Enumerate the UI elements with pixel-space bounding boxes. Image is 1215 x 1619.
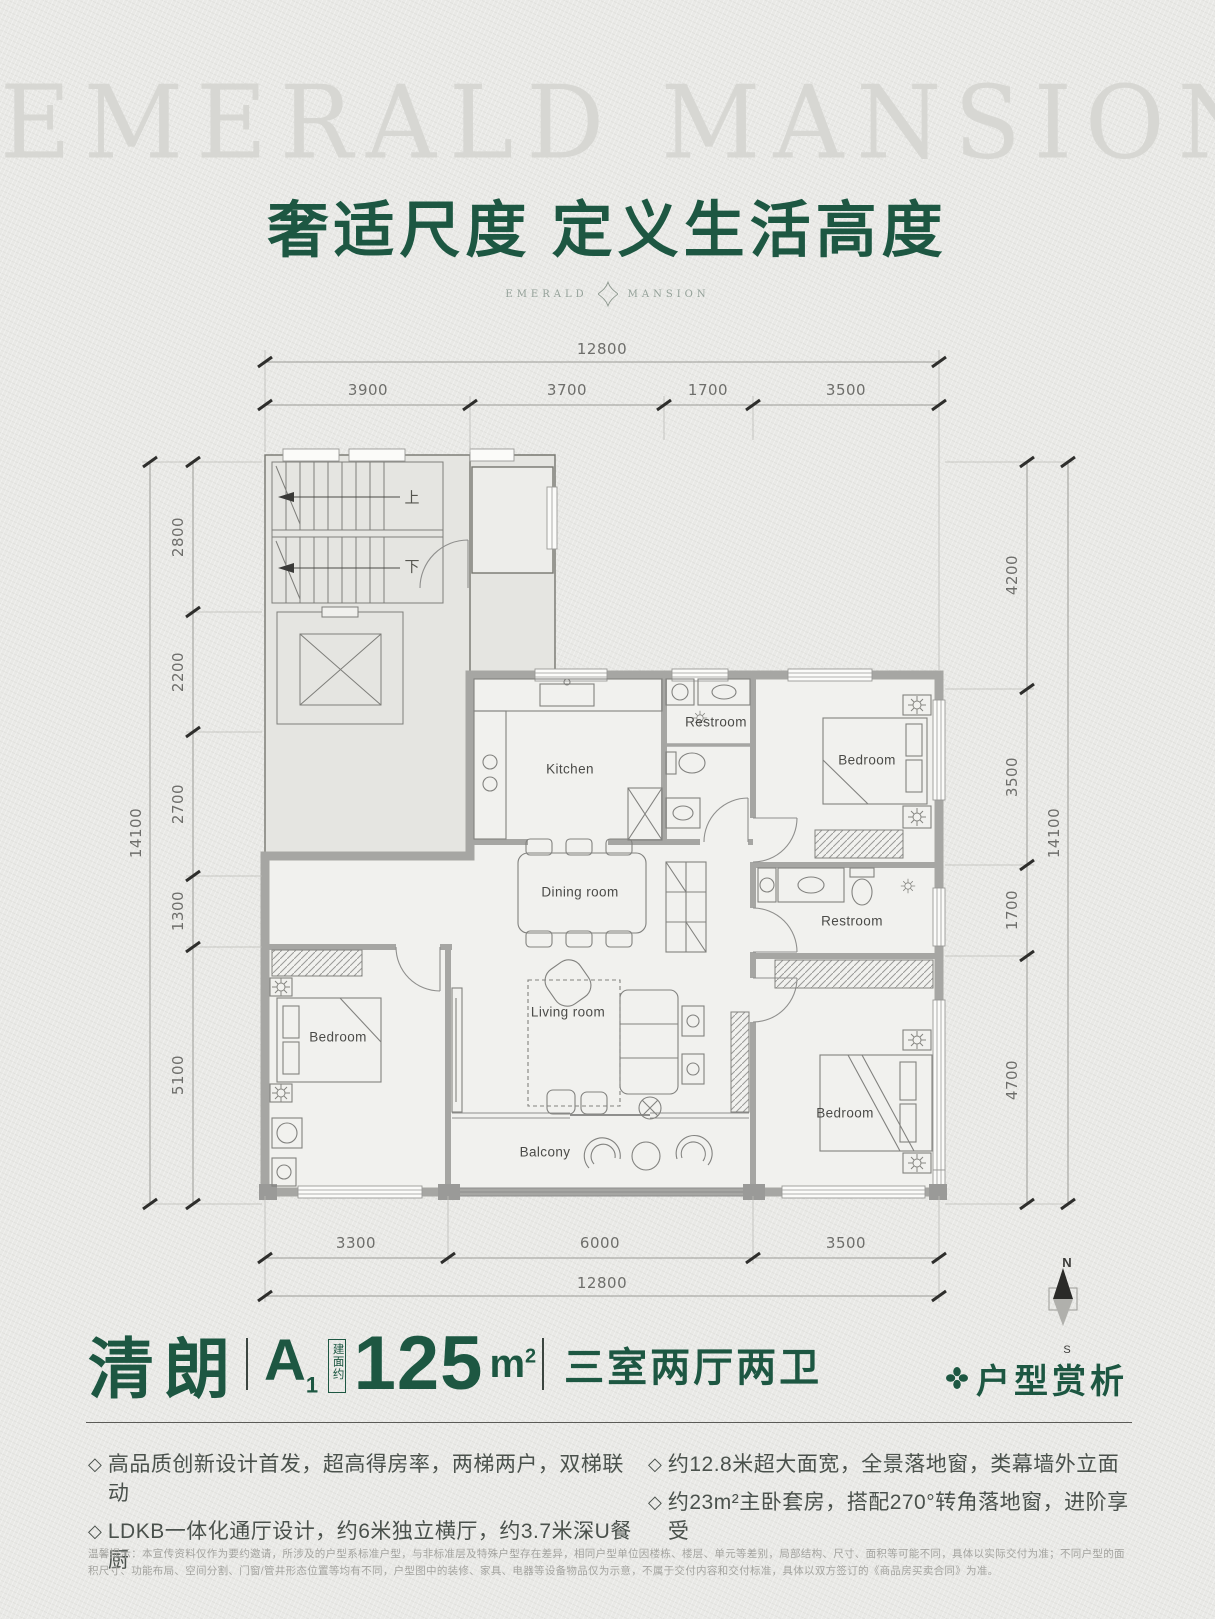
dim-right-seg-1: 4200 [1003,555,1021,595]
room-label-bedroom-top-right: Bedroom [838,753,896,768]
feature-item: ◇ 高品质创新设计首发，超高得房率，两梯两户，双梯联动 [88,1450,633,1508]
area-unit-letter: m [489,1342,525,1386]
dim-right-seg-2: 3500 [1003,757,1021,797]
dim-top-seg-2: 3700 [547,381,587,399]
feature-text: 高品质创新设计首发，超高得房率，两梯两户，双梯联动 [108,1450,633,1508]
room-label-bedroom-bottom-right: Bedroom [816,1106,874,1121]
diamond-bullet-icon: ◇ [88,1517,102,1546]
area-value: 125 [354,1326,484,1402]
room-label-living: Living room [531,1005,605,1020]
dim-bottom-seg-3: 3500 [826,1234,866,1252]
feature-text: 约12.8米超大面宽，全景落地窗，类幕墙外立面 [668,1450,1119,1479]
unit-info-bar: 清朗 A1 建面约 125 m2 三室两厅两卫 户型赏析 [88,1318,1128,1410]
dim-left-seg-1: 2800 [169,517,187,557]
room-label-kitchen: Kitchen [546,762,594,777]
disclaimer-text: 温馨提示：本宣传资料仅作为要约邀请，所涉及的户型系标准户型，与非标准层及特殊户型… [88,1546,1132,1581]
divider-bar [542,1338,544,1390]
layout-text: 三室两厅两卫 [564,1335,822,1393]
dim-bottom-seg-1: 3300 [336,1234,376,1252]
feature-column-right: ◇ 约12.8米超大面宽，全景落地窗，类幕墙外立面 ◇ 约23m²主卧套房，搭配… [648,1450,1138,1555]
unit-code: A1 [264,1332,318,1397]
section-flower-icon [946,1367,968,1389]
dim-left-seg-2: 2200 [169,652,187,692]
divider-bar [246,1338,248,1390]
dim-top-total: 12800 [577,340,627,358]
diamond-bullet-icon: ◇ [88,1450,102,1479]
diamond-bullet-icon: ◇ [648,1450,662,1479]
dim-right-seg-3: 1700 [1003,890,1021,930]
divider-line [86,1422,1132,1423]
unit-number: 1 [306,1372,318,1397]
room-label-restroom-middle: Restroom [821,914,883,929]
dim-bottom-seg-2: 6000 [580,1234,620,1252]
unit-name: 清朗 [88,1316,240,1412]
unit-letter: A [264,1328,306,1393]
section-title: 户型赏析 [976,1354,1128,1403]
room-label-dining: Dining room [541,885,618,900]
dim-left-total: 14100 [127,808,145,858]
stairs-down-label: 下 [404,556,419,577]
feature-item: ◇ 约12.8米超大面宽，全景落地窗，类幕墙外立面 [648,1450,1138,1479]
feature-item: ◇ 约23m²主卧套房，搭配270°转角落地窗，进阶享受 [648,1488,1138,1546]
dim-left-seg-4: 1300 [169,891,187,931]
area-unit: m2 [489,1342,536,1387]
stairs-up-label: 上 [404,487,419,508]
poster-page: { "brand": { "watermark": "EMERALD MANSI… [0,0,1215,1619]
dim-left-seg-5: 5100 [169,1055,187,1095]
section-heading: 户型赏析 [946,1354,1128,1403]
area-prefix-tag: 建面约 [328,1339,346,1393]
dim-top-seg-3: 1700 [688,381,728,399]
dim-bottom-total: 12800 [577,1274,627,1292]
dim-right-seg-4: 4700 [1003,1060,1021,1100]
feature-text: 约23m²主卧套房，搭配270°转角落地窗，进阶享受 [668,1488,1138,1546]
compass-north-label: N [1062,1256,1071,1270]
diamond-bullet-icon: ◇ [648,1488,662,1517]
area-exponent: 2 [525,1345,536,1367]
dim-right-total: 14100 [1045,808,1063,858]
dim-top-seg-1: 3900 [348,381,388,399]
dim-top-seg-4: 3500 [826,381,866,399]
room-label-restroom-top: Restroom [685,715,747,730]
room-label-bedroom-left: Bedroom [309,1030,367,1045]
room-label-balcony: Balcony [520,1145,571,1160]
dim-left-seg-3: 2700 [169,784,187,824]
